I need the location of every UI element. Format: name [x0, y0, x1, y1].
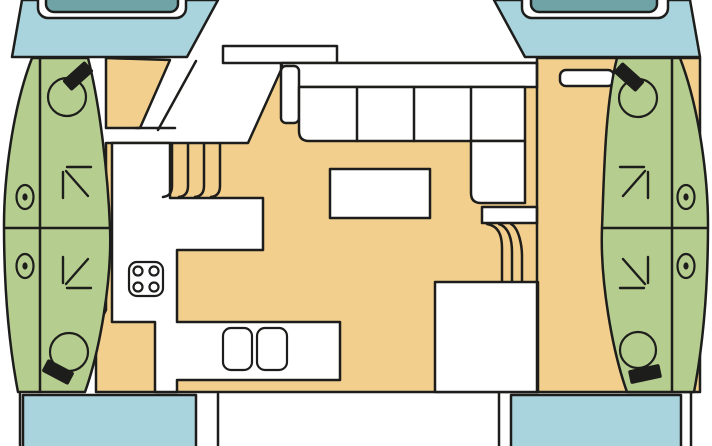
port-bow-hatch-glass	[46, 0, 178, 12]
aft-cabin-block	[435, 282, 538, 392]
port-hull-group	[4, 58, 110, 392]
starboard-stern-platform	[511, 395, 681, 446]
settee-backrest	[282, 63, 537, 87]
port-stern-platform	[23, 395, 196, 446]
settee-end-armrest	[281, 66, 299, 123]
port-hull-cabins	[4, 58, 110, 392]
floor-plan-svg	[0, 0, 712, 446]
saloon-table	[330, 169, 430, 218]
starboard-bow-hatch-glass	[531, 0, 657, 12]
settee-cushions	[299, 87, 525, 141]
stair-shelf	[482, 207, 537, 223]
forward-seat	[223, 46, 337, 63]
settee-corner-cushion	[471, 141, 525, 203]
walkway-step	[560, 70, 614, 86]
catamaran-floor-plan	[0, 0, 712, 446]
